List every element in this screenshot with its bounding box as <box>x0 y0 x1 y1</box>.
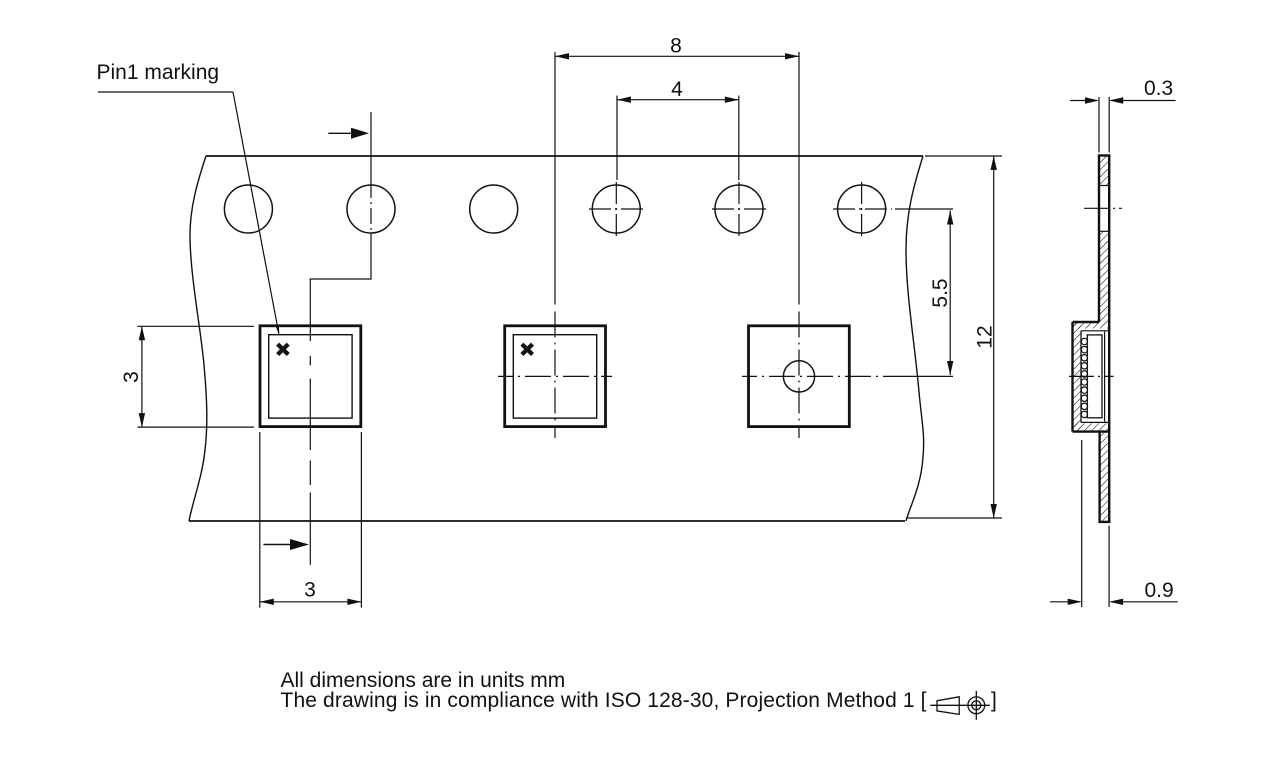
svg-text:8: 8 <box>670 35 682 58</box>
svg-text:5.5: 5.5 <box>929 278 952 307</box>
svg-text:Pin1 marking: Pin1 marking <box>97 61 220 84</box>
svg-text:]: ] <box>991 689 997 712</box>
svg-text:4: 4 <box>671 78 683 101</box>
svg-text:3: 3 <box>120 371 143 383</box>
svg-text:0.3: 0.3 <box>1144 77 1173 100</box>
svg-text:The drawing is in compliance w: The drawing is in compliance with ISO 12… <box>281 689 927 712</box>
svg-text:3: 3 <box>304 579 316 602</box>
svg-text:0.9: 0.9 <box>1145 579 1174 602</box>
svg-text:12: 12 <box>974 325 997 348</box>
